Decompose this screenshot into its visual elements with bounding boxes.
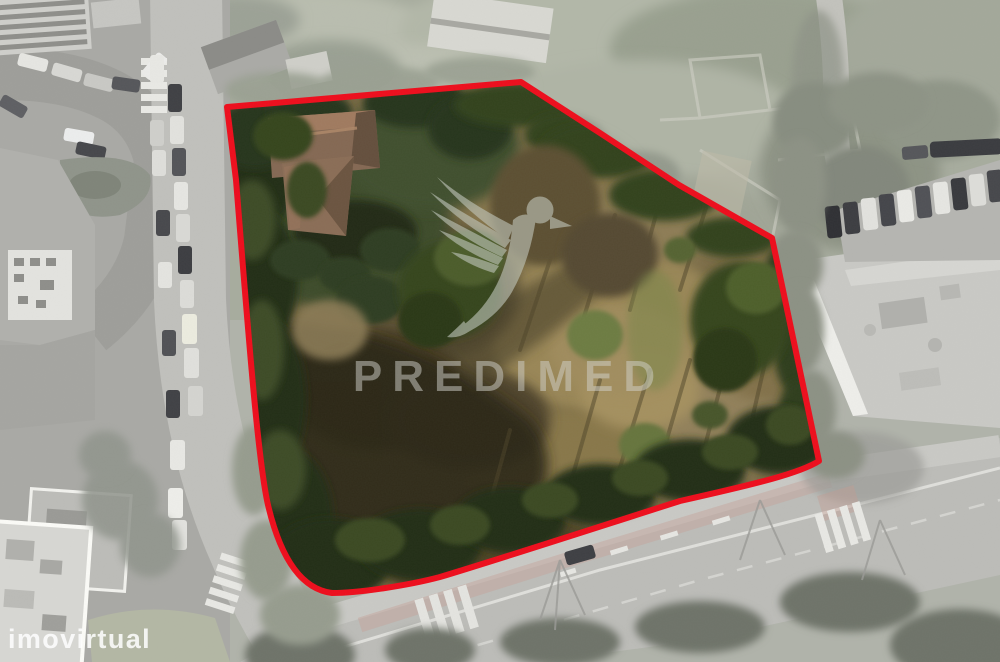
- svg-text:PREDIMED: PREDIMED: [353, 352, 665, 401]
- svg-text:imovirtual: imovirtual: [8, 624, 151, 654]
